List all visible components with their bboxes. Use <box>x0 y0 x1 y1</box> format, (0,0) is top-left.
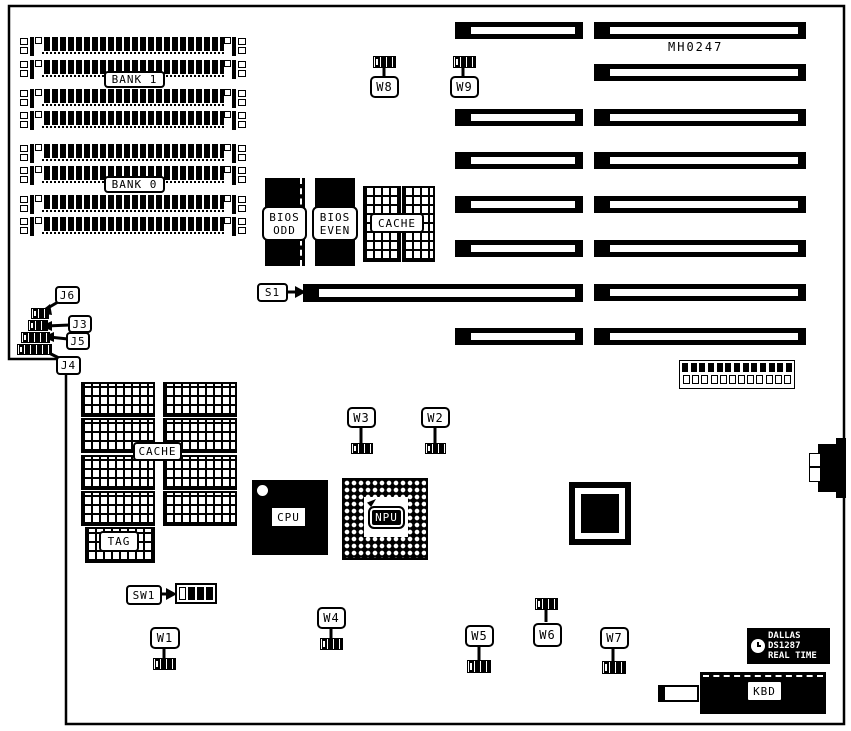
jumper-w4-pins <box>320 638 343 650</box>
jumper-w3-pins <box>351 443 373 454</box>
cache-chip <box>163 491 237 526</box>
s1-label: S1 <box>257 283 288 302</box>
expansion-slot <box>455 328 583 345</box>
jumper-label-j6: J6 <box>55 286 80 304</box>
din-connector-body <box>818 444 844 492</box>
s1-slot <box>303 284 583 302</box>
expansion-slot <box>455 22 583 39</box>
jumper-label-w3: W3 <box>347 407 376 428</box>
jumper-w2-pins <box>425 443 446 454</box>
cpu-pin1-dot <box>257 485 268 496</box>
expansion-slot <box>594 284 806 301</box>
expansion-slot <box>594 328 806 345</box>
expansion-slot <box>594 152 806 169</box>
npu-label: NPU <box>368 506 405 529</box>
sw1-dip-switch <box>175 583 217 604</box>
jumper-label-j4: J4 <box>56 356 81 375</box>
expansion-slot <box>594 22 806 39</box>
jumper-label-j3: J3 <box>68 315 92 333</box>
din-connector-pin <box>809 467 821 482</box>
jumper-label-w5: W5 <box>465 625 494 647</box>
simm-slot-bank0-3 <box>20 195 246 214</box>
jumper-j6-pins <box>31 308 49 319</box>
jumper-label-j5: J5 <box>66 332 90 350</box>
jumper-j4-pins <box>17 344 52 355</box>
jumper-w9-pins <box>453 56 476 68</box>
cache-chip <box>163 382 237 417</box>
rtc-part: DS1287 <box>768 641 817 651</box>
sw1-label: SW1 <box>126 585 162 605</box>
jumper-label-w4: W4 <box>317 607 346 629</box>
expansion-slot <box>455 196 583 213</box>
jumper-w5-pins <box>467 660 491 673</box>
expansion-slot <box>594 64 806 81</box>
kbd-label: KBD <box>747 681 782 701</box>
cache-top-label: CACHE <box>370 213 424 233</box>
jumper-j5-pins <box>21 332 50 343</box>
jumper-label-w2: W2 <box>421 407 450 428</box>
pin-header-connector <box>679 360 795 389</box>
rtc-chip: DALLAS DS1287 REAL TIME <box>747 628 830 664</box>
cache-chip <box>81 382 155 417</box>
bios-odd-line2: ODD <box>273 224 296 237</box>
expansion-slot <box>455 240 583 257</box>
tag-label: TAG <box>99 531 139 552</box>
jumper-label-w1: W1 <box>150 627 180 649</box>
jumper-label-w7: W7 <box>600 627 629 649</box>
rtc-brand: DALLAS <box>768 631 817 641</box>
simm-slot-bank1-1 <box>20 37 246 56</box>
jumper-w6-pins <box>535 598 558 610</box>
cache-chip <box>81 491 155 526</box>
bios-odd-line1: BIOS <box>269 211 300 224</box>
expansion-slot <box>455 109 583 126</box>
simm-slot-bank0-1 <box>20 144 246 163</box>
expansion-slot <box>594 109 806 126</box>
bios-even-line1: BIOS <box>320 211 351 224</box>
qfp-chip <box>569 482 631 545</box>
bios-odd-label: BIOS ODD <box>262 206 307 241</box>
jumper-w1-pins <box>153 658 176 670</box>
bios-even-label: BIOS EVEN <box>312 206 358 241</box>
bank0-label: BANK 0 <box>104 176 165 193</box>
rtc-type: REAL TIME <box>768 651 817 661</box>
bios-even-line2: EVEN <box>320 224 351 237</box>
expansion-slot <box>455 152 583 169</box>
jumper-w7-pins <box>602 661 626 674</box>
jumper-label-w8: W8 <box>370 76 399 98</box>
simm-slot-bank0-4 <box>20 217 246 236</box>
cache-bottom-label: CACHE <box>133 442 182 461</box>
expansion-slot <box>594 240 806 257</box>
expansion-slot <box>594 196 806 213</box>
jumper-label-w6: W6 <box>533 623 562 647</box>
jumper-j3-pins <box>28 320 48 331</box>
simm-slot-bank1-4 <box>20 111 246 130</box>
bank1-label: BANK 1 <box>104 71 165 88</box>
jumper-w8-pins <box>373 56 396 68</box>
motherboard-diagram: { "diagram": { "part_number": "MH0247", … <box>0 0 851 731</box>
jumper-label-w9: W9 <box>450 76 479 98</box>
kbd-tail-connector <box>658 685 699 702</box>
clock-icon <box>751 639 765 653</box>
din-connector-pin <box>809 453 821 467</box>
part-number-text: MH0247 <box>668 40 723 54</box>
simm-slot-bank1-3 <box>20 89 246 108</box>
cpu-label: CPU <box>270 506 307 528</box>
